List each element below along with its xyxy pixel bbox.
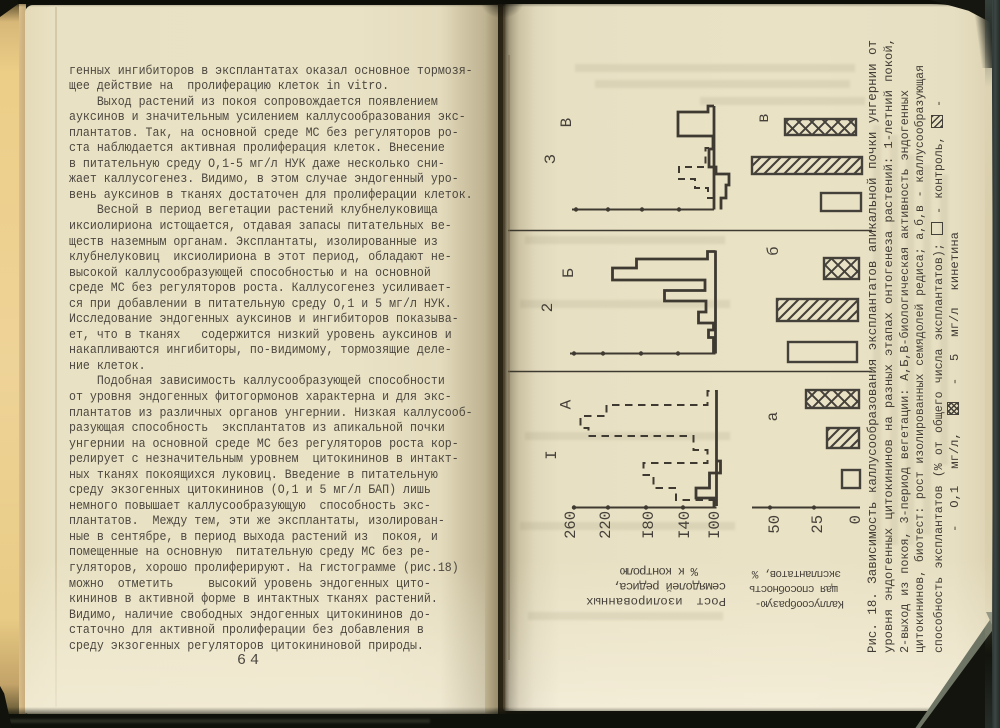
svg-text:в: в xyxy=(755,113,773,123)
svg-text:а: а xyxy=(764,411,782,421)
svg-text:25: 25 xyxy=(809,515,827,534)
svg-text:0: 0 xyxy=(847,515,865,524)
svg-text:I40: I40 xyxy=(676,511,694,539)
svg-text:Б: Б xyxy=(560,268,578,278)
svg-text:В: В xyxy=(558,118,576,128)
svg-text:I80: I80 xyxy=(640,511,658,539)
svg-text:А: А xyxy=(558,399,576,409)
svg-text:б: б xyxy=(765,246,783,256)
svg-text:220: 220 xyxy=(597,511,615,539)
svg-text:260: 260 xyxy=(562,511,580,539)
svg-text:I00: I00 xyxy=(706,511,724,539)
svg-text:50: 50 xyxy=(766,515,784,534)
